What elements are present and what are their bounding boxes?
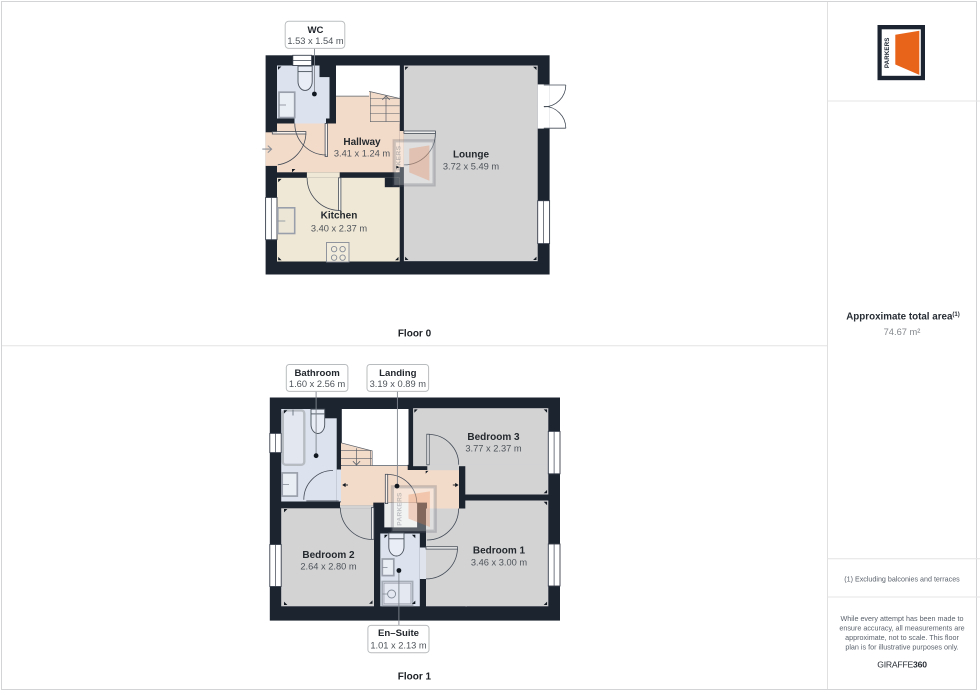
svg-text:Bedroom 3: Bedroom 3 [467, 432, 520, 443]
svg-text:plan is for illustrative purpo: plan is for illustrative purposes only. [845, 643, 958, 652]
svg-text:GIRAFFE360: GIRAFFE360 [877, 660, 927, 670]
svg-text:ensure accuracy, all measureme: ensure accuracy, all measurements are [839, 624, 964, 633]
svg-text:3.77 x 2.37 m: 3.77 x 2.37 m [465, 444, 522, 454]
svg-text:1.53 x 1.54 m: 1.53 x 1.54 m [287, 36, 344, 46]
svg-text:1.60 x 2.56 m: 1.60 x 2.56 m [289, 379, 346, 389]
svg-text:En–Suite: En–Suite [378, 628, 419, 639]
svg-text:PARKERS: PARKERS [397, 492, 404, 526]
svg-text:3.41 x 1.24 m: 3.41 x 1.24 m [334, 148, 391, 158]
svg-text:3.19 x 0.89 m: 3.19 x 0.89 m [370, 379, 427, 389]
svg-text:Lounge: Lounge [453, 150, 490, 161]
svg-text:approximate, not to scale. Thi: approximate, not to scale. This floor [845, 633, 959, 642]
svg-text:Floor 0: Floor 0 [398, 328, 432, 339]
svg-text:74.67 m²: 74.67 m² [884, 327, 921, 337]
svg-text:Approximate total area(1): Approximate total area(1) [846, 312, 960, 323]
svg-text:Kitchen: Kitchen [321, 211, 358, 222]
svg-text:(1) Excluding balconies and te: (1) Excluding balconies and terraces [844, 576, 960, 584]
svg-text:3.72 x 5.49 m: 3.72 x 5.49 m [443, 162, 500, 172]
svg-text:Landing: Landing [379, 368, 416, 379]
svg-text:Hallway: Hallway [343, 137, 381, 148]
svg-text:PARKERS: PARKERS [884, 37, 891, 68]
svg-text:3.40 x 2.37 m: 3.40 x 2.37 m [311, 224, 368, 234]
svg-text:While every attempt has been m: While every attempt has been made to [840, 614, 963, 623]
svg-text:Bedroom 1: Bedroom 1 [473, 546, 526, 557]
svg-text:1.01 x 2.13 m: 1.01 x 2.13 m [370, 640, 427, 650]
svg-text:Floor 1: Floor 1 [398, 672, 432, 683]
svg-text:WC: WC [308, 25, 324, 36]
svg-text:2.64 x 2.80 m: 2.64 x 2.80 m [300, 562, 357, 572]
svg-text:PARKERS: PARKERS [396, 145, 403, 180]
svg-text:3.46 x 3.00 m: 3.46 x 3.00 m [471, 558, 528, 568]
svg-text:Bathroom: Bathroom [294, 368, 339, 379]
svg-text:Bedroom 2: Bedroom 2 [302, 550, 355, 561]
